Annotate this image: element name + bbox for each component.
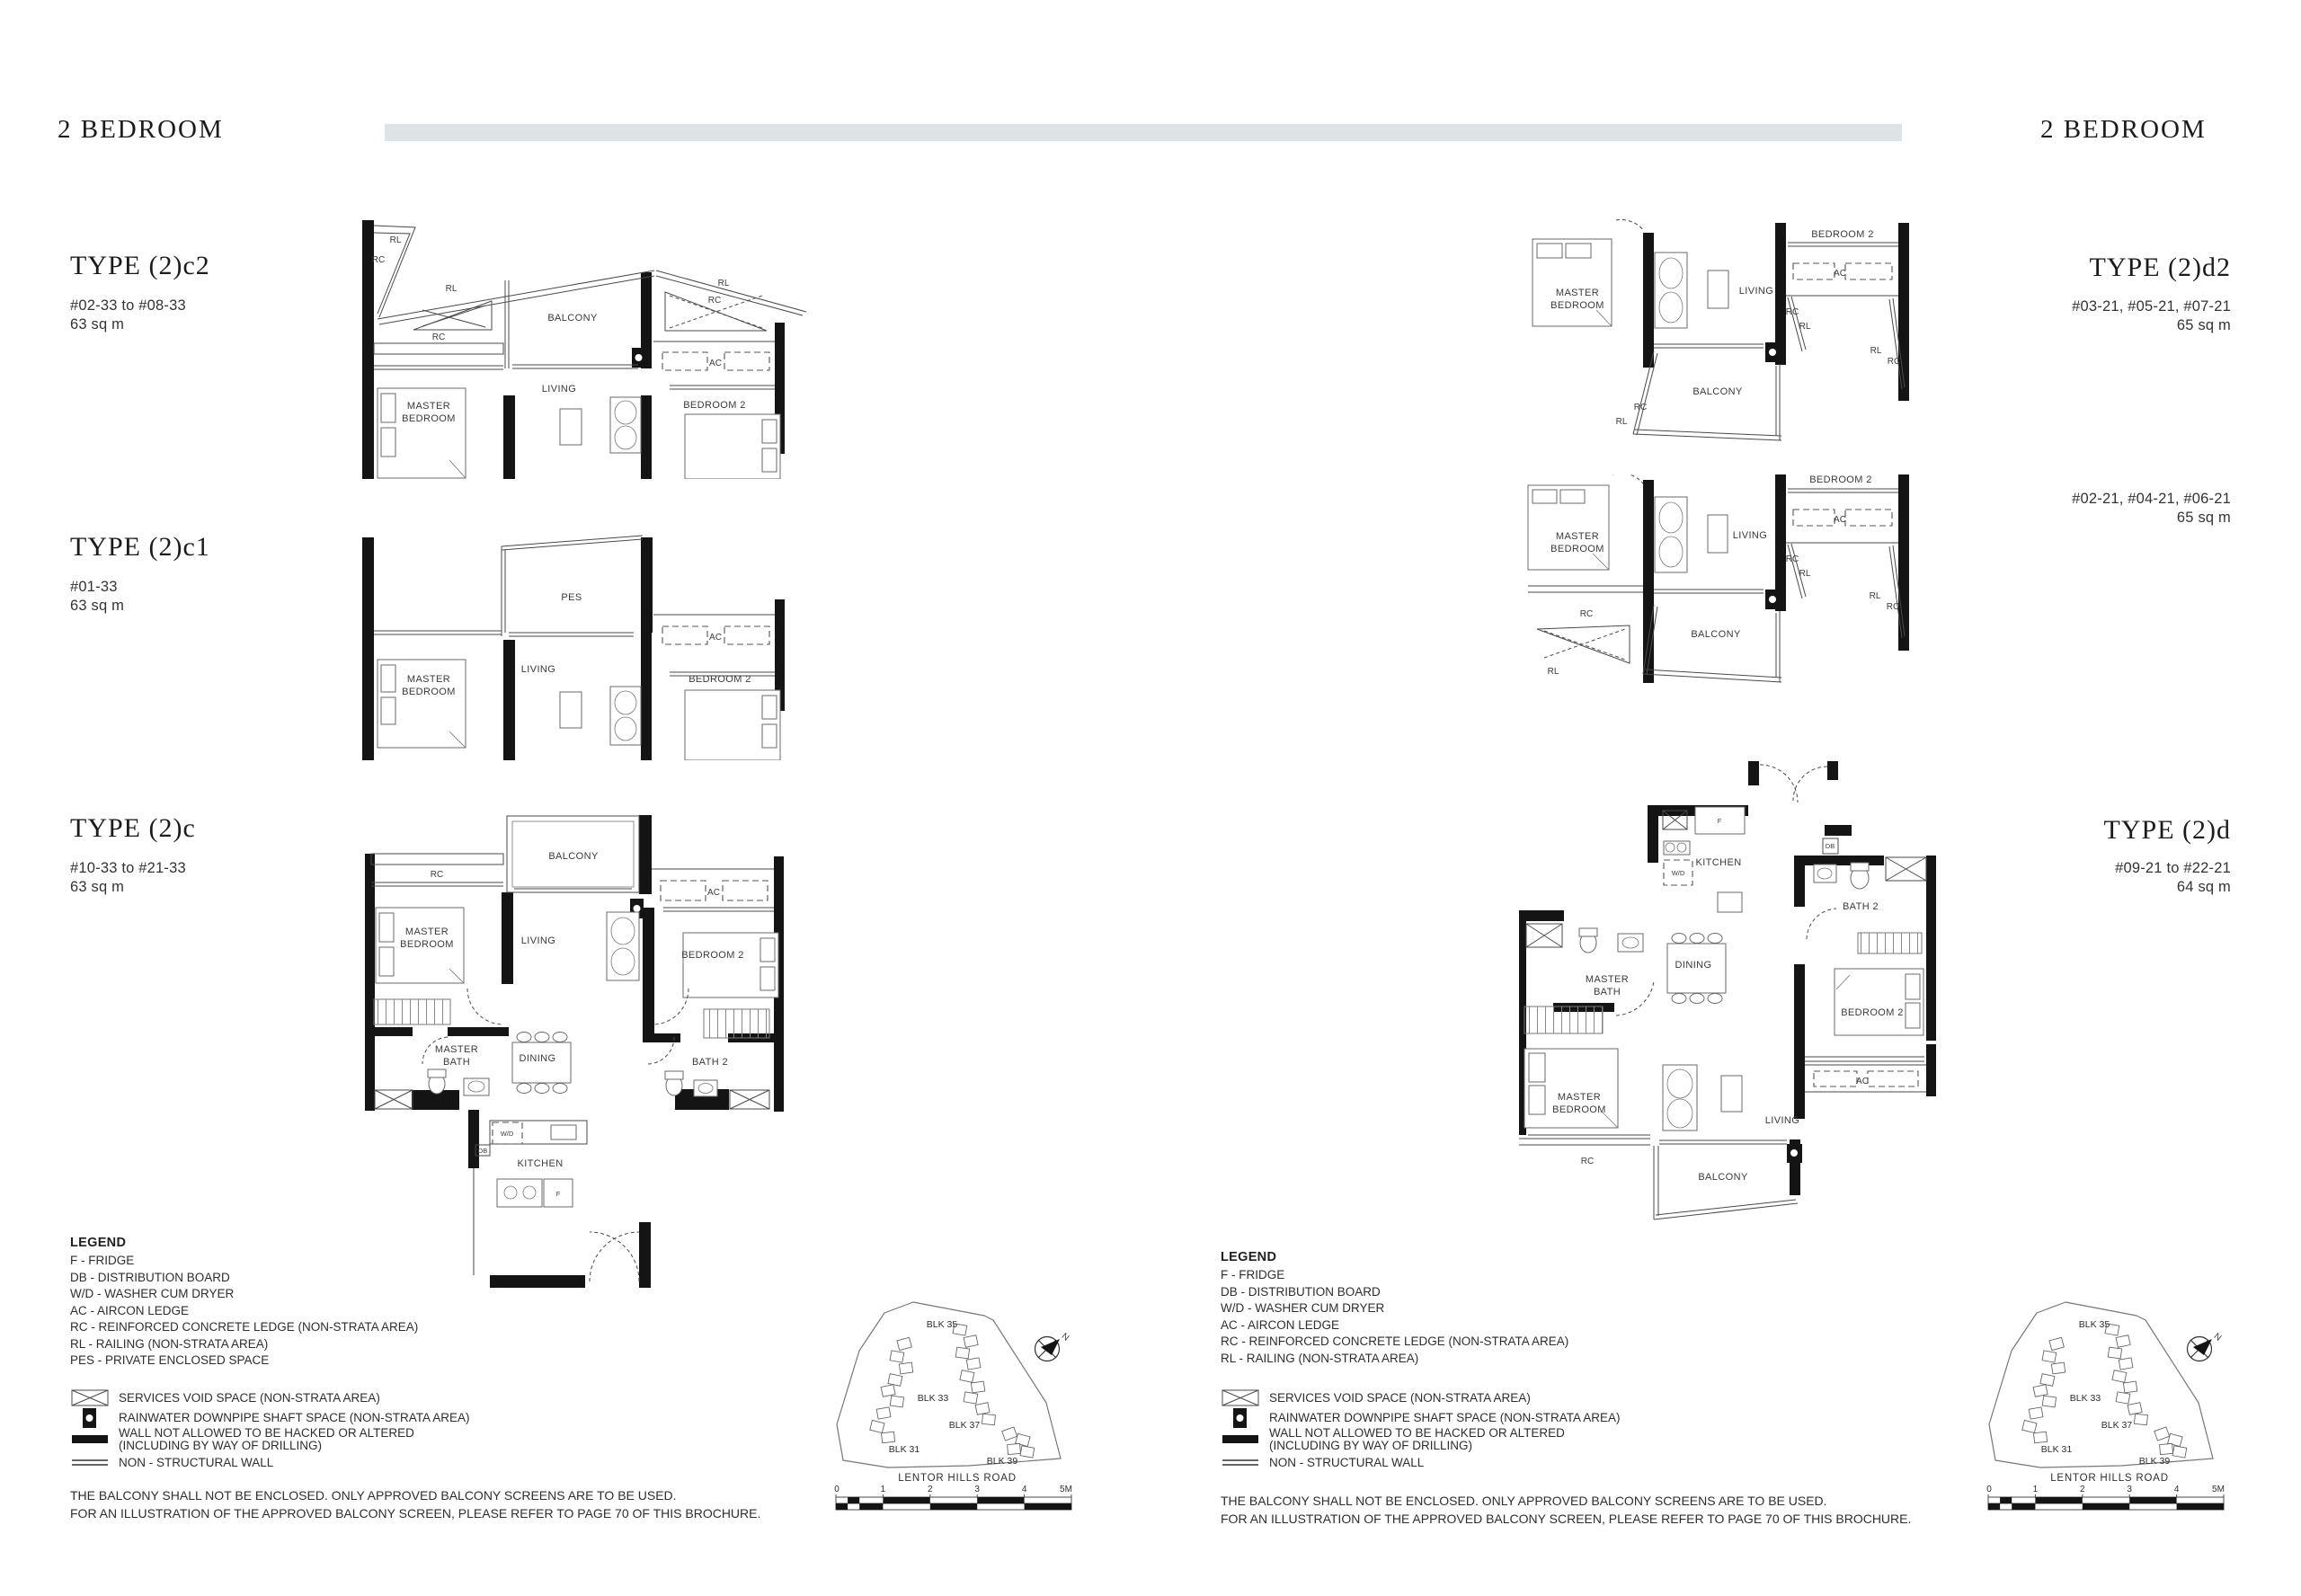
rl-label: RL [446,284,458,294]
floorplan-type-2d2-upper: MASTER BEDROOM LIVING BEDROOM 2 AC RC RL… [1526,218,2040,468]
site-key-plan-left: BLK 35 BLK 33 BLK 37 BLK 31 BLK 39 N LEN… [834,1291,1113,1485]
compass: N [2188,1332,2224,1361]
blk-39-label: BLK 39 [2139,1456,2171,1467]
legend-item: RL - RAILING (NON-STRATA AREA) [1221,1351,1568,1368]
legend-symbol-label: WALL NOT ALLOWED TO BE HACKED OR ALTERED… [119,1427,414,1452]
hack-wall-icon [1221,1430,1260,1450]
rc-label: RC [431,870,443,880]
legend-abbreviations-left: F - FRIDGE DB - DISTRIBUTION BOARD W/D -… [70,1253,418,1370]
rl-label: RL [1548,667,1559,677]
rc-label: RC [1786,307,1799,317]
disclaimer-right: THE BALCONY SHALL NOT BE ENCLOSED. ONLY … [1221,1492,1911,1528]
legend-item: AC - AIRCON LEDGE [70,1303,418,1320]
legend-symbol-label-line2: (INCLUDING BY WAY OF DRILLING) [1269,1439,1472,1452]
type-d2-area-lower: 65 sq m [2177,510,2231,526]
master-bedroom-label: MASTER [1556,288,1599,298]
bedroom2-label: BEDROOM 2 [689,674,751,685]
rl-label: RL [1616,417,1628,427]
rc-label: RC [1581,1157,1594,1166]
site-key-plan-right: BLK 35 BLK 33 BLK 37 BLK 31 BLK 39 N LEN… [1986,1291,2265,1485]
type-d-title: TYPE (2)d [2104,815,2231,846]
rl-label: RL [1799,569,1811,579]
blk-31-label: BLK 31 [889,1444,920,1455]
type-d2-area-upper: 65 sq m [2177,317,2231,333]
furniture [1528,485,1728,572]
non-structural-wall-icon [70,1456,110,1470]
legend-symbol-services-void-right: SERVICES VOID SPACE (NON-STRATA AREA) [1221,1388,1531,1408]
scale-1: 1 [881,1485,886,1494]
distribution-board-label: DB [478,1147,487,1155]
scale-bar-right: 0 1 2 3 4 5M [1986,1483,2225,1519]
legend-symbol-label: RAINWATER DOWNPIPE SHAFT SPACE (NON-STRA… [119,1412,470,1424]
scale-4: 4 [2174,1485,2180,1494]
room-labels: RC BALCONY AC MASTER BEDROOM LIVING BEDR… [400,851,744,1198]
legend-symbol-nonstructural-left: NON - STRUCTURAL WALL [70,1456,273,1470]
pes-and-ledges [374,536,775,676]
type-c-unit-range: #10-33 to #21-33 [70,860,186,876]
legend-item: RC - REINFORCED CONCRETE LEDGE (NON-STRA… [70,1319,418,1336]
dining-label: DINING [1675,960,1712,971]
page-title-left: 2 BEDROOM [58,115,224,145]
floorplan-type-2c2: RL RC RL RC RL RC BALCONY LIVING MASTER … [360,213,813,479]
ac-label: AC [709,633,722,643]
services-void-icon [1221,1388,1260,1408]
scale-2: 2 [928,1485,933,1494]
blk-39-label: BLK 39 [987,1456,1018,1467]
rl-label: RL [1799,322,1811,332]
floorplan-type-2d: KITCHEN F W/D DB BATH 2 MASTER BATH DINI… [1517,759,1976,1303]
legend-symbol-wall-left: WALL NOT ALLOWED TO BE HACKED OR ALTERED… [70,1427,414,1452]
rc-label: RC [432,332,445,342]
type-d-unit-range: #09-21 to #22-21 [2115,860,2231,876]
balcony-label: BALCONY [1692,386,1743,397]
scale-5m: 5M [1060,1485,1072,1494]
master-bedroom-label: BEDROOM [402,687,456,697]
master-bath-label: BATH [443,1057,470,1068]
legend-item: PES - PRIVATE ENCLOSED SPACE [70,1352,418,1370]
fridge-label: F [556,1190,561,1198]
living-label: LIVING [1739,286,1773,297]
legend-item: F - FRIDGE [70,1253,418,1270]
legend-item: W/D - WASHER CUM DRYER [70,1286,418,1303]
bedroom2-label: BEDROOM 2 [1809,474,1872,485]
master-bedroom-label: MASTER [407,401,450,412]
master-bath-label: MASTER [435,1044,478,1055]
blk-37-label: BLK 37 [949,1420,981,1431]
living-label: LIVING [542,384,576,395]
bedroom2-label: BEDROOM 2 [683,400,746,411]
scale-3: 3 [974,1485,980,1494]
ac-label: AC [1834,269,1846,279]
master-bedroom-label: BEDROOM [1552,1104,1606,1115]
rc-label: RC [1786,554,1799,564]
rc-label: RC [1580,609,1593,619]
kitchen-label: KITCHEN [1695,857,1741,868]
header-accent-bar [385,124,1902,141]
type-d-area: 64 sq m [2177,879,2231,895]
type-c1-area: 63 sq m [70,598,124,614]
blk-33-label: BLK 33 [918,1393,949,1404]
compass: N [1035,1332,1071,1361]
legend-symbol-label-line2: (INCLUDING BY WAY OF DRILLING) [119,1439,322,1452]
scale-3: 3 [2127,1485,2132,1494]
type-c2-unit-range: #02-33 to #08-33 [70,297,186,314]
master-bath-label: MASTER [1586,974,1629,985]
rc-label: RC [1888,357,1900,367]
scale-ticks: 0 1 2 3 4 5M [1986,1485,2225,1497]
master-bedroom-label: BEDROOM [402,413,456,424]
blk-35-label: BLK 35 [927,1319,958,1330]
dining-label: DINING [520,1053,556,1064]
services-void-icon [70,1388,110,1408]
master-bedroom-label: MASTER [1556,531,1599,542]
scale-2: 2 [2080,1485,2085,1494]
rc-label: RC [1634,403,1647,412]
legend-item: RC - REINFORCED CONCRETE LEDGE (NON-STRA… [1221,1334,1568,1351]
legend-symbol-label-line1: WALL NOT ALLOWED TO BE HACKED OR ALTERED [119,1426,414,1440]
legend-symbol-nonstructural-right: NON - STRUCTURAL WALL [1221,1456,1424,1470]
non-structural-wall-icon [1221,1456,1260,1470]
type-c-units: #10-33 to #21-3363 sq m [70,859,186,896]
hack-wall-icon [70,1430,110,1450]
legend-symbol-services-void-left: SERVICES VOID SPACE (NON-STRATA AREA) [70,1388,380,1408]
ac-label: AC [707,888,720,898]
disclaimer-line1: THE BALCONY SHALL NOT BE ENCLOSED. ONLY … [70,1486,760,1504]
legend-symbol-label: SERVICES VOID SPACE (NON-STRATA AREA) [1269,1392,1531,1405]
rl-label: RL [1870,591,1881,601]
washer-dryer-label: W/D [501,1130,514,1138]
master-bedroom-label: BEDROOM [400,939,454,950]
ac-label: AC [709,359,722,368]
rc-label: RC [372,255,385,265]
scale-0: 0 [834,1485,840,1494]
page-title-right: 2 BEDROOM [2040,115,2207,145]
legend-item: AC - AIRCON LEDGE [1221,1317,1568,1334]
legend-title-left: LEGEND [70,1236,126,1250]
bedroom2-label: BEDROOM 2 [1841,1007,1904,1018]
bath2-label: BATH 2 [692,1057,728,1068]
balcony-label: BALCONY [548,851,599,862]
living-label: LIVING [1733,530,1767,541]
kitchen-label: KITCHEN [517,1158,563,1169]
rl-label: RL [1870,346,1882,356]
type-d2-unit-range-upper: #03-21, #05-21, #07-21 [2072,298,2231,315]
master-bedroom-label: MASTER [1558,1092,1601,1103]
balcony-label: BALCONY [1698,1172,1748,1183]
blk-33-label: BLK 33 [2070,1393,2101,1404]
blk-35-label: BLK 35 [2079,1319,2110,1330]
living-label: LIVING [521,935,555,946]
master-bedroom-label: BEDROOM [1550,544,1604,554]
scale-4: 4 [1022,1485,1027,1494]
legend-symbol-label: NON - STRUCTURAL WALL [1269,1457,1424,1469]
type-c2-title: TYPE (2)c2 [70,251,210,281]
disclaimer-line2: FOR AN ILLUSTRATION OF THE APPROVED BALC… [70,1504,760,1522]
scale-bar [1988,1497,2224,1510]
railings-and-ledges [374,226,806,389]
legend-item: DB - DISTRIBUTION BOARD [70,1270,418,1287]
type-c1-title: TYPE (2)c1 [70,532,210,563]
type-c1-unit-range: #01-33 [70,579,118,595]
rainwater-downpipe-icon [70,1407,110,1429]
pes-label: PES [561,592,582,603]
bedroom2-label: BEDROOM 2 [1811,229,1874,240]
legend-symbol-label-line1: WALL NOT ALLOWED TO BE HACKED OR ALTERED [1269,1426,1565,1440]
master-bedroom-label: MASTER [405,927,449,937]
north-label: N [2212,1332,2223,1343]
furniture [1533,239,1728,328]
legend-symbol-wall-right: WALL NOT ALLOWED TO BE HACKED OR ALTERED… [1221,1427,1565,1452]
north-label: N [1060,1332,1071,1343]
floorplan-type-2d2-lower: MASTER BEDROOM LIVING BEDROOM 2 AC RC RL… [1526,474,2040,746]
rl-label: RL [718,279,730,288]
master-bath-label: BATH [1594,987,1621,997]
type-d2-unit-range-lower: #02-21, #04-21, #06-21 [2072,491,2231,507]
ac-label: AC [1834,515,1846,525]
disclaimer-line2: FOR AN ILLUSTRATION OF THE APPROVED BALC… [1221,1510,1911,1528]
ac-label: AC [1856,1077,1869,1086]
block-clusters [870,1324,1035,1458]
scale-ticks: 0 1 2 3 4 5M [834,1485,1072,1497]
legend-item: DB - DISTRIBUTION BOARD [1221,1284,1568,1301]
floorplan-type-2c1: PES LIVING MASTER BEDROOM BEDROOM 2 AC [360,505,813,760]
scale-5m: 5M [2212,1485,2225,1494]
rc-label: RC [1887,602,1899,612]
type-d2-units-lower: #02-21, #04-21, #06-2165 sq m [2072,490,2231,527]
rainwater-downpipe-icon [1221,1407,1260,1429]
bedroom2-label: BEDROOM 2 [681,950,744,961]
living-label: LIVING [1765,1115,1799,1126]
balcony-label: BALCONY [1691,629,1741,640]
master-bedroom-label: BEDROOM [1550,300,1604,311]
master-bedroom-label: MASTER [407,674,450,685]
rl-label: RL [390,235,402,245]
bath2-label: BATH 2 [1843,901,1879,912]
disclaimer-line1: THE BALCONY SHALL NOT BE ENCLOSED. ONLY … [1221,1492,1911,1510]
blk-31-label: BLK 31 [2041,1444,2073,1455]
disclaimer-left: THE BALCONY SHALL NOT BE ENCLOSED. ONLY … [70,1486,760,1522]
fridge-label: F [1718,817,1722,825]
legend-symbol-label: SERVICES VOID SPACE (NON-STRATA AREA) [119,1392,380,1405]
legend-item: F - FRIDGE [1221,1267,1568,1284]
scale-bar-left: 0 1 2 3 4 5M [834,1483,1073,1519]
type-d-units: #09-21 to #22-2164 sq m [2115,859,2231,896]
block-clusters [2022,1324,2187,1458]
type-d2-units-upper: #03-21, #05-21, #07-2165 sq m [2072,297,2231,334]
living-label: LIVING [521,664,555,675]
scale-bar [836,1497,1071,1510]
legend-symbol-label: WALL NOT ALLOWED TO BE HACKED OR ALTERED… [1269,1427,1565,1452]
scale-0: 0 [1986,1485,1992,1494]
legend-symbol-label: NON - STRUCTURAL WALL [119,1457,273,1469]
scale-1: 1 [2033,1485,2039,1494]
legend-symbol-label: RAINWATER DOWNPIPE SHAFT SPACE (NON-STRA… [1269,1412,1621,1424]
floorplan-type-2c: RC BALCONY AC MASTER BEDROOM LIVING BEDR… [358,764,800,1305]
legend-item: W/D - WASHER CUM DRYER [1221,1300,1568,1317]
blk-37-label: BLK 37 [2101,1420,2133,1431]
brochure-page: { "page": { "header_left": "2 BEDROOM", … [0,0,2301,1596]
distribution-board-label: DB [1826,842,1835,850]
type-c1-units: #01-3363 sq m [70,578,124,615]
type-c-area: 63 sq m [70,879,124,895]
balcony-label: BALCONY [547,313,598,324]
type-c2-units: #02-33 to #08-3363 sq m [70,297,186,333]
type-d2-title: TYPE (2)d2 [2090,253,2231,283]
rc-label: RC [708,296,721,306]
washer-dryer-label: W/D [1672,869,1685,877]
type-c-title: TYPE (2)c [70,813,196,844]
legend-abbreviations-right: F - FRIDGE DB - DISTRIBUTION BOARD W/D -… [1221,1267,1568,1367]
legend-title-right: LEGEND [1221,1250,1276,1264]
legend-item: RL - RAILING (NON-STRATA AREA) [70,1336,418,1353]
type-c2-area: 63 sq m [70,316,124,332]
